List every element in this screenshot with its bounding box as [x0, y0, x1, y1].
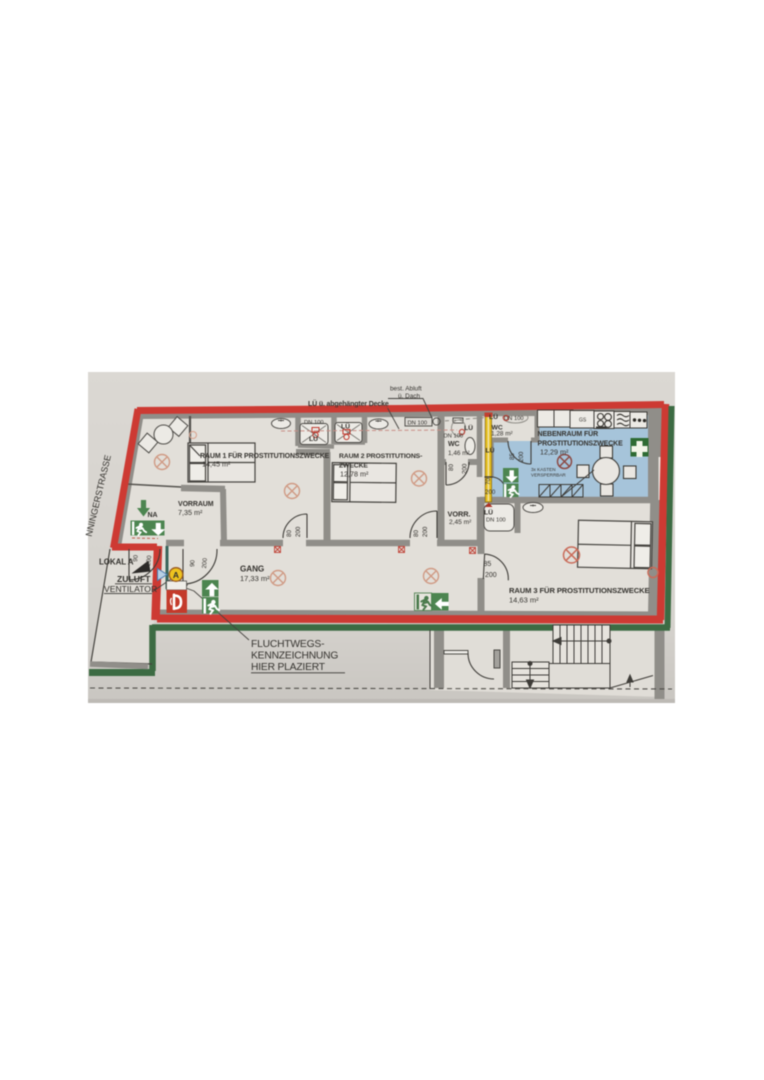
svg-text:best. Abluft: best. Abluft — [390, 386, 422, 393]
svg-text:VENTILATOR: VENTILATOR — [104, 584, 157, 594]
svg-text:12,29 m²: 12,29 m² — [540, 448, 569, 457]
svg-text:VERSPERRBAR: VERSPERRBAR — [531, 473, 566, 478]
svg-text:LÜ ü. abgehängter Decke: LÜ ü. abgehängter Decke — [308, 399, 389, 408]
svg-text:85: 85 — [509, 453, 516, 460]
svg-text:200: 200 — [485, 572, 497, 579]
svg-text:200: 200 — [518, 451, 525, 462]
svg-text:GANG: GANG — [240, 565, 264, 574]
svg-text:200: 200 — [422, 526, 429, 537]
svg-text:70: 70 — [485, 478, 492, 485]
svg-text:200: 200 — [145, 555, 153, 567]
svg-text:ZULUFT: ZULUFT — [117, 574, 151, 584]
svg-text:200: 200 — [462, 463, 469, 474]
svg-text:80: 80 — [286, 530, 293, 537]
svg-text:LÜ: LÜ — [309, 434, 318, 443]
svg-text:LÜ: LÜ — [341, 422, 350, 431]
svg-text:FLUCHTWEGS-: FLUCHTWEGS- — [251, 639, 324, 650]
svg-text:LÜ: LÜ — [464, 423, 473, 432]
svg-text:KENNZEICHNUNG: KENNZEICHNUNG — [251, 651, 338, 662]
svg-text:ü. Dach: ü. Dach — [398, 393, 420, 400]
svg-text:HIER PLAZIERT: HIER PLAZIERT — [251, 662, 326, 673]
svg-text:DN 100: DN 100 — [486, 518, 506, 524]
svg-text:1,28 m²: 1,28 m² — [491, 431, 513, 438]
svg-text:LÜ: LÜ — [489, 412, 498, 421]
svg-text:WC: WC — [448, 441, 460, 448]
svg-text:3x KASTEN: 3x KASTEN — [531, 467, 556, 472]
svg-text:A: A — [173, 570, 179, 580]
svg-text:85: 85 — [484, 561, 492, 568]
svg-text:LÜ: LÜ — [486, 446, 495, 455]
svg-text:14,45 m²: 14,45 m² — [202, 460, 231, 469]
svg-text:90: 90 — [189, 559, 197, 567]
svg-text:LÜ: LÜ — [484, 508, 493, 517]
svg-text:1,46 m²: 1,46 m² — [448, 450, 470, 457]
svg-text:ZWECKE: ZWECKE — [339, 463, 368, 470]
svg-text:DN 100: DN 100 — [444, 434, 464, 440]
svg-text:2,45 m²: 2,45 m² — [449, 519, 472, 526]
svg-text:DN 100: DN 100 — [408, 421, 428, 427]
svg-text:NEBENRAUM FÜR: NEBENRAUM FÜR — [538, 429, 599, 438]
svg-text:80: 80 — [448, 464, 455, 471]
svg-text:14,63 m²: 14,63 m² — [509, 596, 539, 605]
svg-text:VORR.: VORR. — [448, 510, 471, 519]
svg-text:7,35 m²: 7,35 m² — [178, 508, 203, 517]
svg-text:PROSTITUTIONSZWECKE: PROSTITUTIONSZWECKE — [538, 441, 624, 448]
svg-text:DN 100: DN 100 — [504, 416, 524, 422]
svg-text:LOKAL A: LOKAL A — [99, 558, 134, 567]
svg-text:NA: NA — [148, 512, 158, 519]
svg-text:80: 80 — [413, 530, 420, 537]
svg-text:GS: GS — [579, 418, 587, 424]
svg-text:200: 200 — [485, 489, 496, 496]
svg-text:RAUM 2 PROSTITUTIONS-: RAUM 2 PROSTITUTIONS- — [339, 453, 422, 460]
svg-text:DN 100: DN 100 — [304, 420, 324, 426]
svg-text:200: 200 — [295, 526, 302, 537]
svg-text:RAUM 3 FÜR PROSTITUTIONSZWECKE: RAUM 3 FÜR PROSTITUTIONSZWECKE — [509, 586, 649, 595]
svg-text:200: 200 — [201, 557, 209, 568]
svg-text:VORRAUM: VORRAUM — [178, 501, 214, 508]
svg-text:12,78 m²: 12,78 m² — [340, 470, 369, 479]
svg-text:17,33 m²: 17,33 m² — [240, 574, 270, 583]
